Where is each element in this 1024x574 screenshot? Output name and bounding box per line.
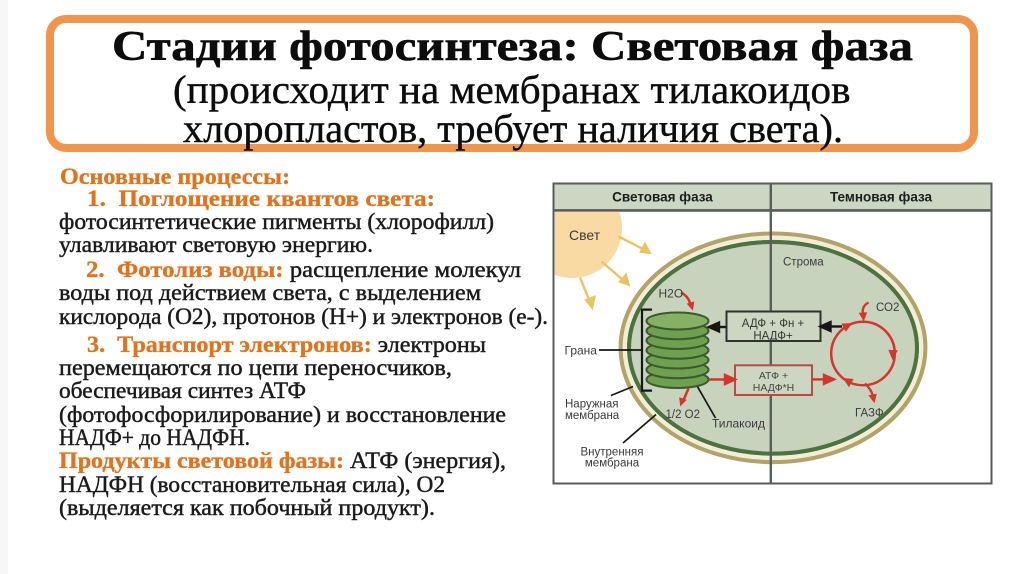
- svg-text:НАДФ*Н: НАДФ*Н: [753, 382, 794, 394]
- svg-text:Строма: Строма: [783, 256, 824, 268]
- svg-text:НАДФ+: НАДФ+: [753, 331, 793, 343]
- svg-text:СО2: СО2: [876, 302, 899, 314]
- svg-text:мембрана: мембрана: [585, 458, 640, 470]
- svg-text:1/2 О2: 1/2 О2: [666, 409, 701, 421]
- svg-text:Световая фаза: Световая фаза: [612, 190, 713, 205]
- svg-text:АДФ + Фн +: АДФ + Фн +: [742, 318, 805, 330]
- svg-text:Наружная: Наружная: [565, 399, 619, 411]
- svg-text:АТФ +: АТФ +: [759, 370, 788, 382]
- svg-text:Тилакоид: Тилакоид: [712, 417, 765, 431]
- svg-text:Н2О: Н2О: [659, 287, 684, 301]
- svg-text:ГАЗФ: ГАЗФ: [855, 408, 884, 420]
- svg-text:Грана: Грана: [565, 344, 598, 358]
- svg-text:Темновая фаза: Темновая фаза: [830, 190, 933, 205]
- svg-text:Свет: Свет: [569, 227, 601, 243]
- svg-text:мембрана: мембрана: [565, 410, 620, 422]
